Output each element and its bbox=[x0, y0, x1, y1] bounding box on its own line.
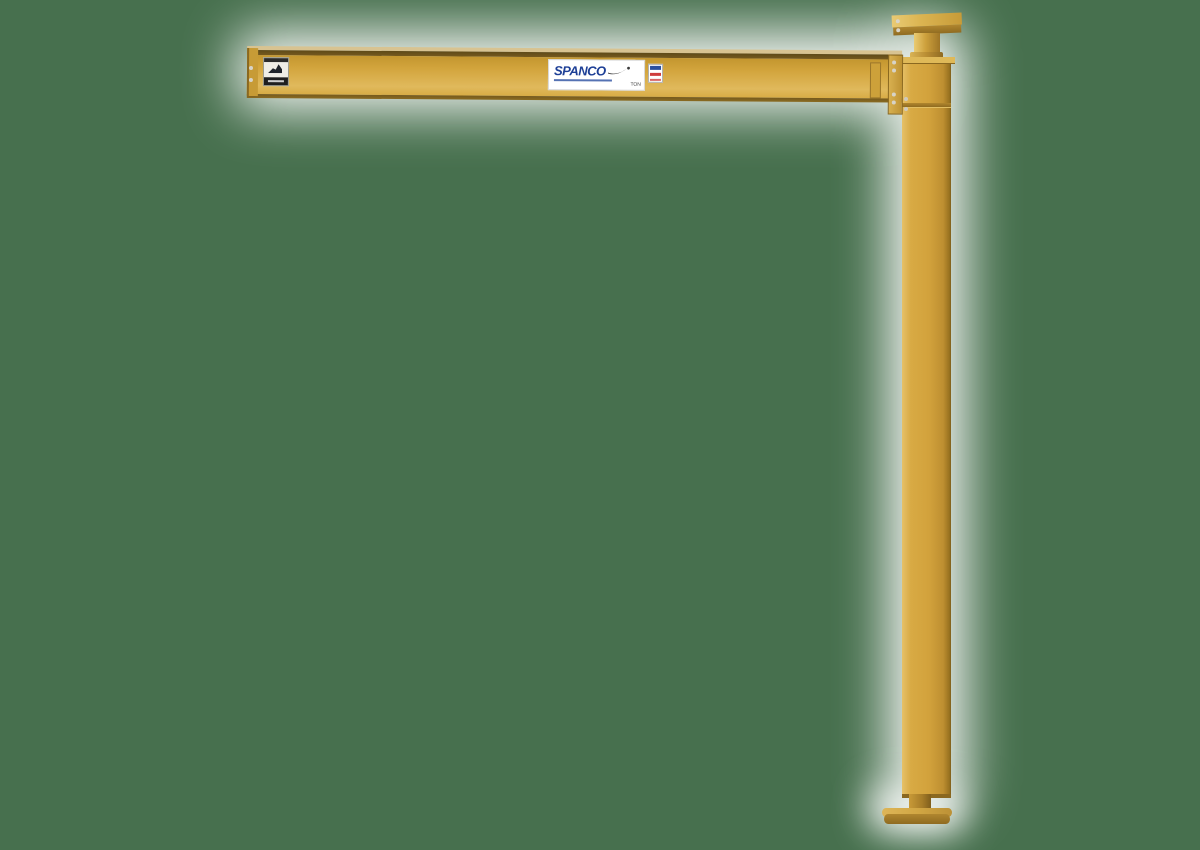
product-photo-stage: SPANCO TON bbox=[0, 0, 1200, 850]
brand-label: SPANCO TON bbox=[548, 59, 645, 91]
boom-web-stiffener bbox=[870, 62, 881, 98]
warning-sticker bbox=[263, 57, 289, 86]
bolt-icon bbox=[904, 97, 908, 101]
brand-name-text: SPANCO bbox=[554, 64, 606, 77]
origin-sticker-blue-row bbox=[650, 66, 661, 70]
top-pivot-cylinder bbox=[914, 33, 940, 54]
warning-sticker-footer bbox=[264, 77, 288, 85]
bolt-icon bbox=[249, 78, 253, 82]
mast-head-plate bbox=[898, 57, 955, 64]
swoosh-icon bbox=[607, 66, 631, 77]
capacity-text: TON bbox=[630, 83, 641, 88]
mast-weld-seam bbox=[902, 103, 951, 107]
bolt-icon bbox=[892, 69, 896, 73]
base-plate-edge bbox=[884, 814, 950, 824]
origin-sticker-red-row bbox=[650, 73, 661, 76]
bolt-icon bbox=[904, 107, 908, 111]
bolt-icon bbox=[892, 93, 896, 97]
origin-sticker bbox=[648, 64, 663, 83]
crane-pictogram-icon bbox=[268, 64, 282, 73]
bolt-icon bbox=[249, 66, 253, 70]
brand-tagline-bar bbox=[554, 79, 612, 81]
bolt-icon bbox=[892, 61, 896, 65]
boom-end-stop bbox=[247, 48, 258, 96]
bolt-icon bbox=[892, 101, 896, 105]
warning-sticker-body bbox=[264, 62, 288, 77]
boom-beam: SPANCO TON bbox=[247, 46, 902, 103]
mast-column bbox=[902, 57, 951, 798]
origin-sticker-red-row bbox=[650, 79, 661, 81]
